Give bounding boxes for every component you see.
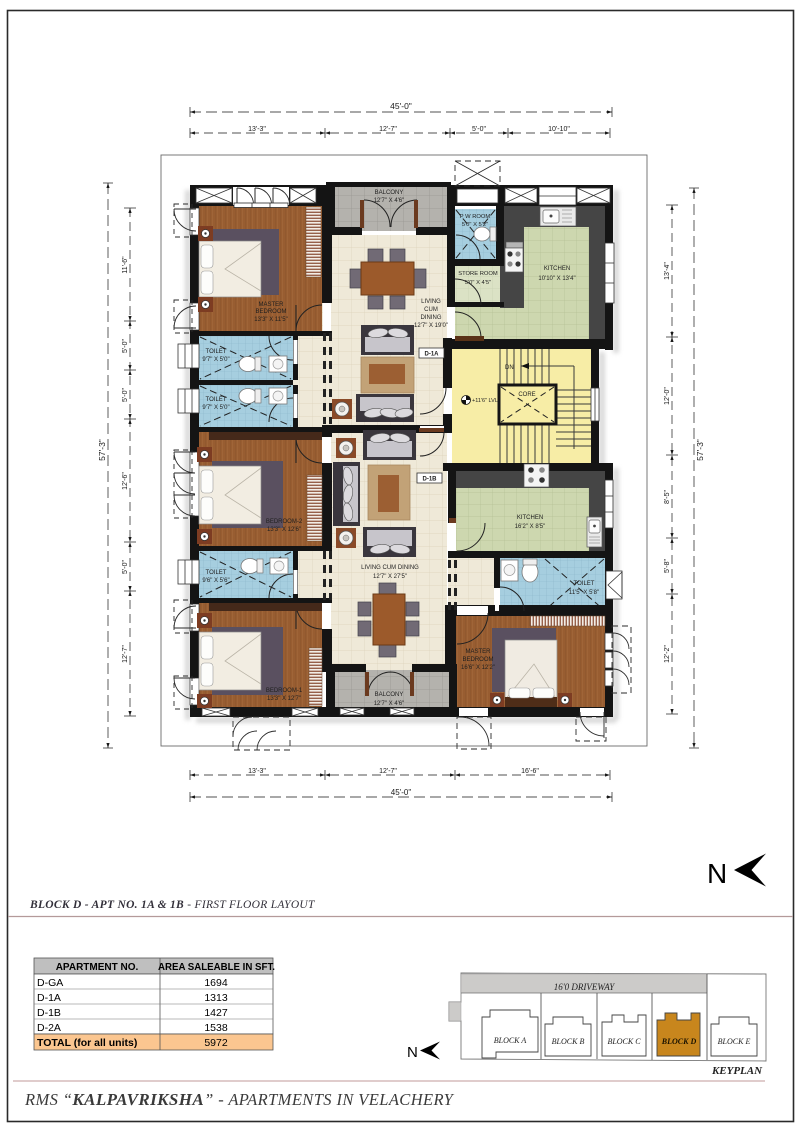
svg-text:11'-6": 11'-6" [122,256,129,274]
svg-text:45'-0": 45'-0" [390,101,412,111]
svg-text:KITCHEN: KITCHEN [517,515,543,521]
svg-text:13'3" X 12'6": 13'3" X 12'6" [267,527,301,533]
svg-text:13'-3": 13'-3" [248,126,266,133]
svg-text:CORE: CORE [518,392,535,398]
svg-text:DINING: DINING [421,315,442,321]
svg-text:LIVING: LIVING [421,299,441,305]
svg-text:57'-3": 57'-3" [97,439,107,461]
svg-text:D-1A: D-1A [424,352,439,358]
svg-text:MASTER: MASTER [465,649,491,655]
svg-text:BLOCK B: BLOCK B [552,1037,585,1046]
svg-text:TOILET: TOILET [206,397,227,403]
svg-text:CUM: CUM [424,307,438,313]
svg-text:16'2" X 8'5": 16'2" X 8'5" [515,524,546,530]
svg-text:DN: DN [505,365,514,371]
svg-text:45'-0": 45'-0" [391,788,412,797]
svg-text:1538: 1538 [204,1022,228,1034]
svg-text:5'-8": 5'-8" [664,559,671,573]
svg-text:13'-4": 13'-4" [664,262,671,280]
svg-text:BALCONY: BALCONY [375,190,404,196]
svg-text:57'-3": 57'-3" [695,439,705,461]
svg-text:BALCONY: BALCONY [375,692,404,698]
svg-text:TOTAL (for all units): TOTAL (for all units) [37,1037,137,1049]
svg-text:9'7" X 5'0": 9'7" X 5'0" [202,405,229,411]
svg-text:13'3" X 12'7": 13'3" X 12'7" [267,696,301,702]
svg-text:+11'6" LVL: +11'6" LVL [472,398,498,404]
svg-text:11'5" X 5'8": 11'5" X 5'8" [569,590,599,596]
svg-text:10'-10": 10'-10" [548,126,570,133]
svg-text:16'0 DRIVEWAY: 16'0 DRIVEWAY [554,982,616,992]
svg-text:D-1B: D-1B [422,477,437,483]
svg-text:5'-0": 5'-0" [122,560,129,574]
svg-text:12'7" X 19'0": 12'7" X 19'0" [414,323,448,329]
svg-text:12'7" X 4'6": 12'7" X 4'6" [374,198,405,204]
svg-text:12'-7": 12'-7" [379,126,397,133]
svg-text:RMS “KALPAVRIKSHA” - APARTMENT: RMS “KALPAVRIKSHA” - APARTMENTS IN VELAC… [24,1090,455,1109]
svg-text:12'-7": 12'-7" [379,768,397,775]
svg-text:BEDROOM-2: BEDROOM-2 [266,519,303,525]
svg-text:KEYPLAN: KEYPLAN [711,1065,763,1077]
svg-text:5'-0": 5'-0" [122,388,129,402]
svg-text:TOILET: TOILET [206,570,227,576]
svg-text:1313: 1313 [204,992,228,1004]
svg-text:MASTER: MASTER [258,302,284,308]
svg-text:D-GA: D-GA [37,977,63,989]
svg-text:BLOCK C: BLOCK C [607,1037,641,1046]
svg-text:BLOCK D - APT NO. 1A & 1B - FI: BLOCK D - APT NO. 1A & 1B - FIRST FLOOR … [29,899,316,911]
svg-text:12'-7": 12'-7" [122,645,129,663]
svg-text:N: N [707,858,727,889]
svg-text:12'7" X 4'6": 12'7" X 4'6" [374,701,405,707]
svg-text:1427: 1427 [204,1007,228,1019]
svg-text:BEDROOM: BEDROOM [255,309,286,315]
svg-text:D-1A: D-1A [37,992,61,1004]
svg-text:P W ROOM: P W ROOM [460,214,491,220]
svg-text:D-2A: D-2A [37,1022,61,1034]
svg-text:13'-3": 13'-3" [248,768,266,775]
svg-text:12'-6": 12'-6" [122,472,129,490]
svg-text:5'-0": 5'-0" [472,126,486,133]
svg-text:8'-5": 8'-5" [664,490,671,504]
svg-text:TOILET: TOILET [574,581,595,587]
svg-text:STORE ROOM: STORE ROOM [458,271,498,277]
svg-text:16'-6": 16'-6" [521,768,539,775]
svg-text:5972: 5972 [204,1037,228,1049]
svg-text:9'7" X 5'0": 9'7" X 5'0" [202,357,229,363]
svg-text:BLOCK D: BLOCK D [661,1037,697,1046]
svg-text:12'-0": 12'-0" [664,387,671,405]
svg-text:5'-0": 5'-0" [122,339,129,353]
svg-text:12'-2": 12'-2" [664,645,671,663]
svg-text:AREA SALEABLE IN SFT.: AREA SALEABLE IN SFT. [158,962,275,973]
svg-text:10'10" X 13'4": 10'10" X 13'4" [538,276,575,282]
svg-text:TOILET: TOILET [206,349,227,355]
svg-text:BLOCK E: BLOCK E [718,1037,751,1046]
svg-text:BEDROOM-1: BEDROOM-1 [266,688,303,694]
svg-text:BLOCK A: BLOCK A [494,1036,527,1045]
svg-text:1694: 1694 [204,977,228,989]
svg-text:APARTMENT NO.: APARTMENT NO. [56,962,139,973]
svg-text:13'3" X 11'5": 13'3" X 11'5" [254,317,287,323]
svg-text:LIVING CUM DINING: LIVING CUM DINING [361,565,419,571]
svg-text:9'6" X 5'6": 9'6" X 5'6" [202,578,229,584]
svg-text:KITCHEN: KITCHEN [544,266,570,272]
svg-text:BEDROOM: BEDROOM [462,657,493,663]
svg-text:12'7" X 27'5": 12'7" X 27'5" [373,574,407,580]
svg-text:N: N [407,1044,418,1061]
svg-text:5'0" X 5'2": 5'0" X 5'2" [462,222,488,228]
svg-text:16'6" X 12'2": 16'6" X 12'2" [461,665,495,671]
svg-text:D-1B: D-1B [37,1007,61,1019]
svg-text:5'0" X 4'5": 5'0" X 4'5" [465,280,491,286]
